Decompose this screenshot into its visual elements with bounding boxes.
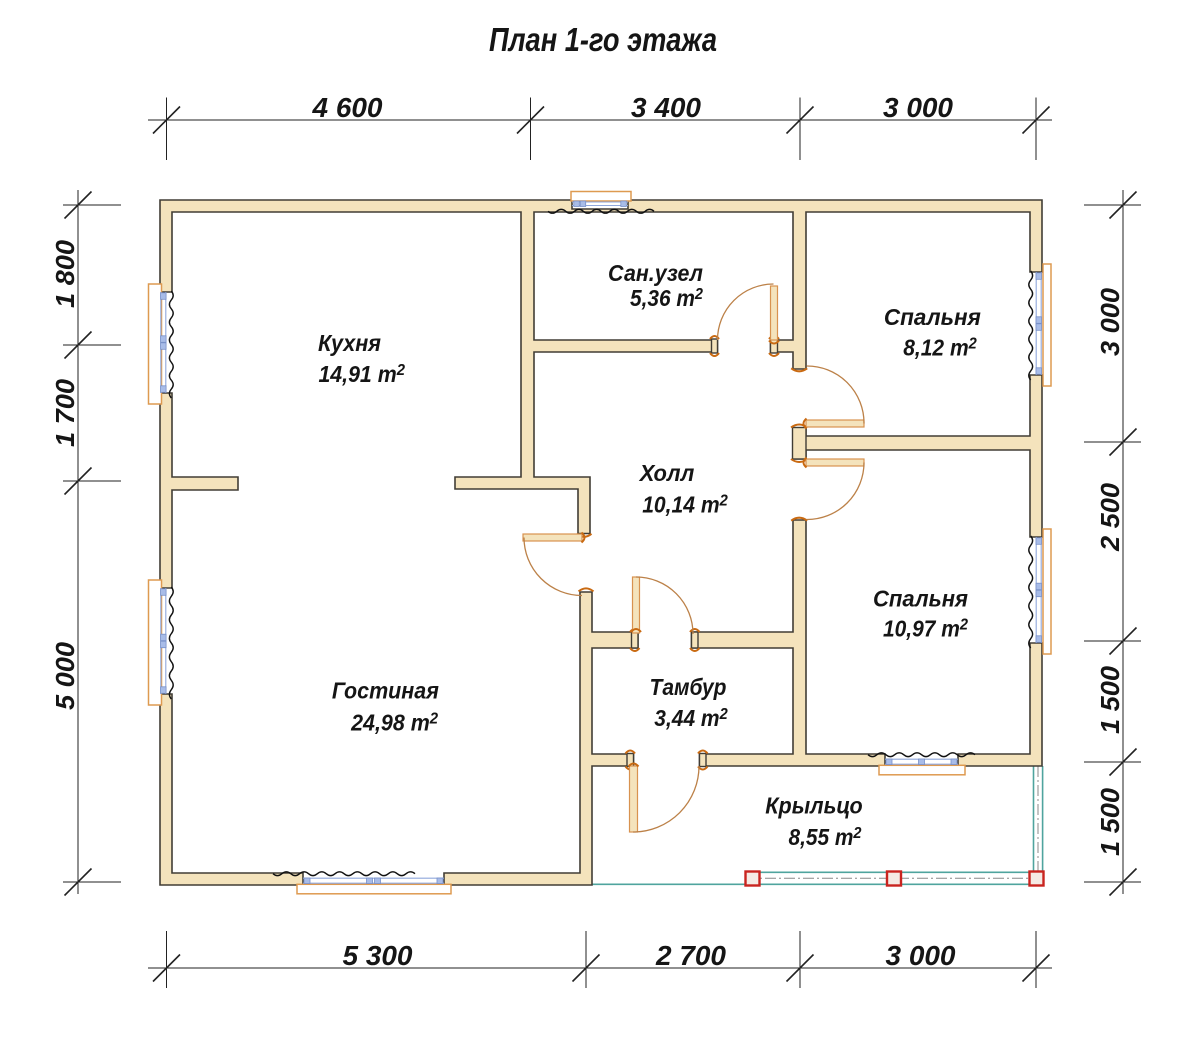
svg-text:3 400: 3 400	[631, 92, 701, 123]
svg-text:Холл: Холл	[638, 460, 695, 486]
svg-text:8,55 m2: 8,55 m2	[789, 824, 862, 850]
svg-text:1 500: 1 500	[1095, 665, 1125, 734]
svg-text:5 000: 5 000	[50, 641, 80, 710]
svg-text:3,44 m2: 3,44 m2	[654, 705, 727, 731]
svg-text:Кухня: Кухня	[318, 330, 381, 356]
svg-text:14,91 m2: 14,91 m2	[318, 361, 405, 387]
svg-text:4 600: 4 600	[312, 92, 383, 123]
svg-text:План 1-го этажа: План 1-го этажа	[489, 21, 717, 58]
svg-text:5 300: 5 300	[343, 940, 413, 971]
svg-text:10,14 m2: 10,14 m2	[642, 491, 728, 517]
svg-text:2 500: 2 500	[1095, 482, 1125, 552]
svg-text:8,12 m2: 8,12 m2	[903, 335, 977, 361]
svg-text:5,36 m2: 5,36 m2	[630, 285, 703, 311]
svg-text:3 000: 3 000	[1095, 287, 1125, 356]
svg-text:10,97 m2: 10,97 m2	[883, 616, 968, 642]
svg-text:3 000: 3 000	[883, 92, 953, 123]
svg-text:Сан.узел: Сан.узел	[608, 260, 703, 286]
svg-text:1 700: 1 700	[50, 378, 80, 447]
svg-text:Тамбур: Тамбур	[650, 674, 727, 700]
svg-text:1 800: 1 800	[50, 239, 80, 308]
svg-text:Гостиная: Гостиная	[332, 678, 439, 704]
svg-text:1 500: 1 500	[1095, 787, 1125, 856]
svg-text:Крыльцо: Крыльцо	[765, 793, 863, 819]
svg-text:Спальня: Спальня	[884, 304, 981, 330]
svg-text:Спальня: Спальня	[873, 586, 968, 612]
svg-text:3 000: 3 000	[886, 940, 956, 971]
svg-text:2 700: 2 700	[655, 940, 726, 971]
svg-text:24,98 m2: 24,98 m2	[350, 710, 438, 736]
